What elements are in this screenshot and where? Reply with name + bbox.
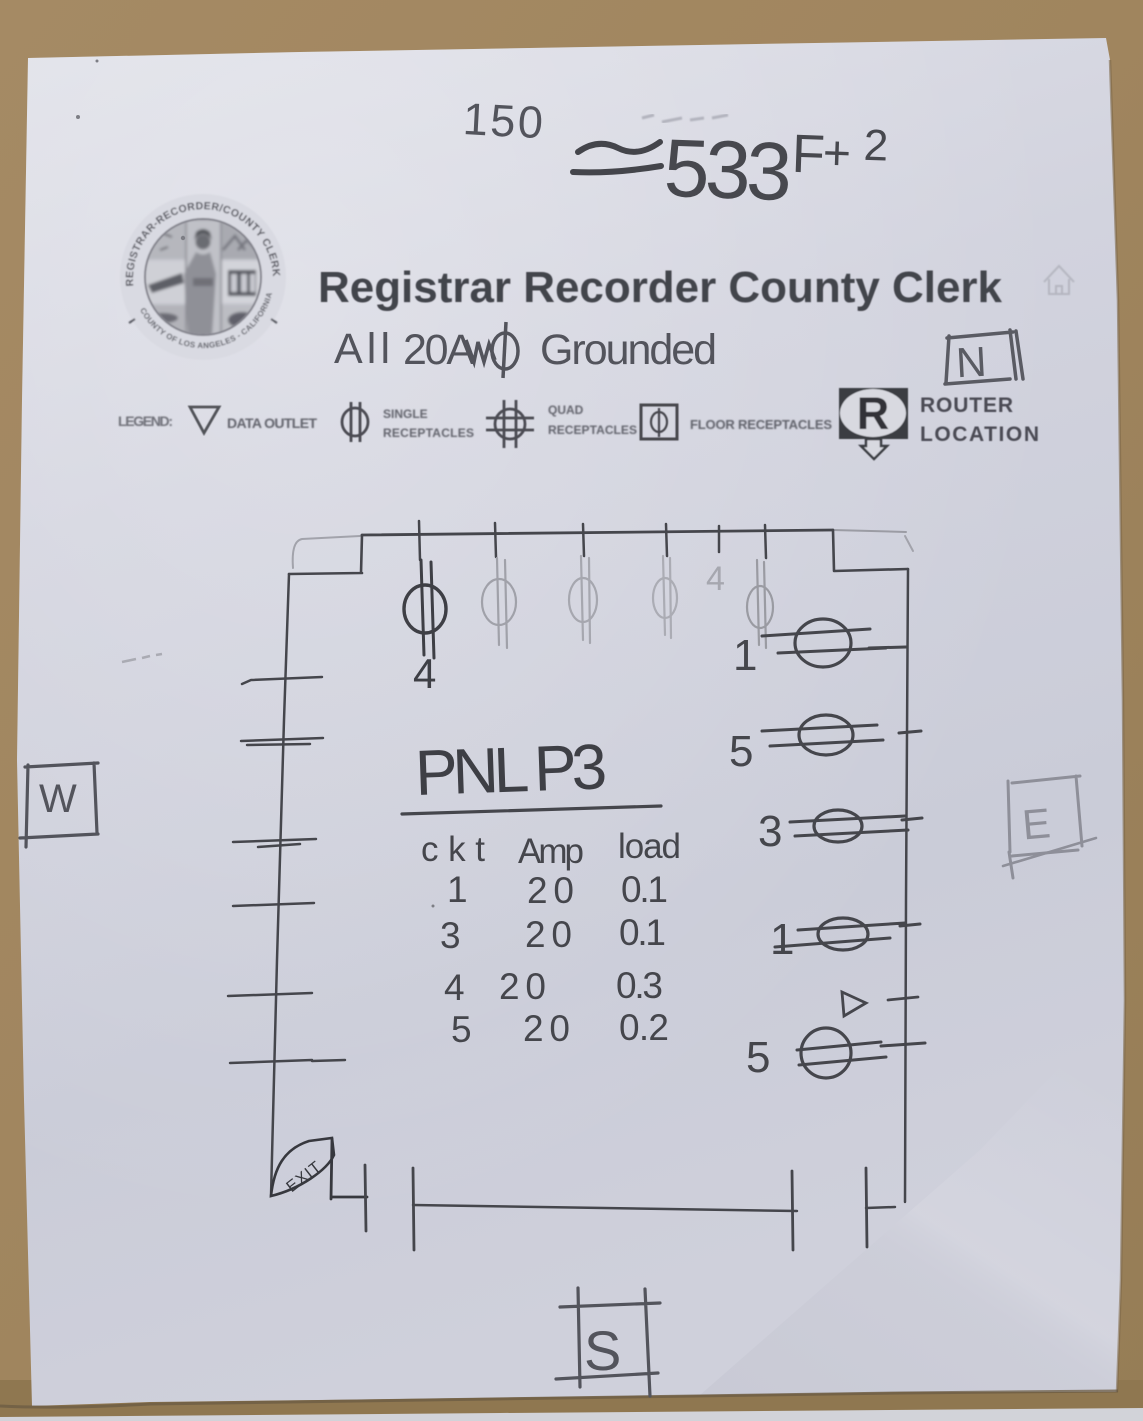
svg-text:20A: 20A (403, 326, 475, 374)
svg-text:5: 5 (729, 727, 753, 776)
svg-text:DATA OUTLET: DATA OUTLET (227, 415, 317, 431)
svg-text:PNL P3: PNL P3 (414, 730, 608, 809)
svg-text:ROUTER: ROUTER (920, 394, 1013, 417)
svg-text:RECEPTACLES: RECEPTACLES (383, 426, 474, 440)
svg-text:S: S (584, 1319, 621, 1382)
svg-text:150: 150 (462, 93, 545, 148)
svg-text:W: W (39, 777, 77, 821)
svg-text:N: N (955, 338, 988, 387)
svg-text:R: R (857, 388, 890, 439)
svg-text:2: 2 (863, 121, 889, 171)
svg-text:load: load (618, 827, 681, 866)
svg-text:LEGEND:: LEGEND: (118, 413, 173, 429)
svg-text:All: All (334, 325, 390, 373)
svg-text:4: 4 (413, 650, 436, 697)
svg-text:0.2: 0.2 (619, 1007, 669, 1048)
svg-text:Registrar Recorder County Cler: Registrar Recorder County Clerk (318, 263, 1003, 312)
svg-text:5: 5 (451, 1009, 472, 1050)
svg-text:SINGLE: SINGLE (383, 407, 428, 421)
svg-text:533: 533 (662, 123, 793, 218)
svg-text:RECEPTACLES: RECEPTACLES (548, 423, 637, 437)
svg-text:FLOOR RECEPTACLES: FLOOR RECEPTACLES (690, 417, 832, 432)
svg-text:1: 1 (733, 631, 757, 680)
svg-text:1: 1 (447, 869, 468, 910)
svg-text:ckt: ckt (421, 830, 485, 869)
svg-text:3: 3 (440, 915, 461, 956)
svg-text:E: E (1020, 799, 1052, 848)
svg-text:LOCATION: LOCATION (920, 423, 1039, 446)
svg-text:5: 5 (746, 1033, 770, 1082)
svg-text:0.3: 0.3 (616, 965, 663, 1006)
svg-text:F: F (791, 124, 826, 185)
svg-text:0.1: 0.1 (619, 912, 666, 953)
svg-text:1: 1 (770, 915, 794, 964)
svg-text:4: 4 (444, 967, 465, 1008)
svg-text:Grounded: Grounded (540, 326, 717, 374)
svg-text:4: 4 (706, 560, 725, 598)
svg-text:QUAD: QUAD (548, 403, 584, 417)
svg-text:3: 3 (758, 807, 782, 856)
svg-text:+: + (822, 127, 852, 181)
svg-text:0.1: 0.1 (621, 869, 668, 910)
svg-text:Amp: Amp (518, 832, 584, 871)
